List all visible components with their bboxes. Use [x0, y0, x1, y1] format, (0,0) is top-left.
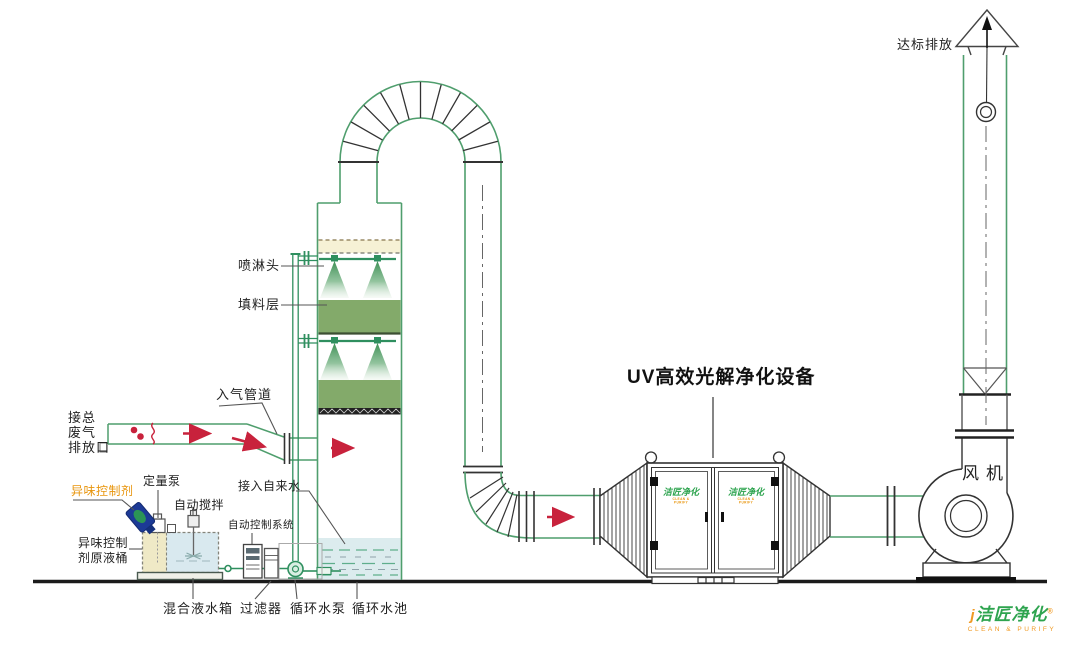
waste-gas-flow-marks — [131, 423, 262, 446]
uv-base-skid — [652, 577, 778, 584]
label-auto-control: 自动控制系统 — [228, 518, 294, 533]
filter-device — [265, 549, 279, 579]
label-packing-layer: 填料层 — [238, 297, 280, 312]
label-metering-pump: 定量泵 — [143, 474, 181, 489]
spray-nozzle-icon — [363, 261, 392, 298]
elbow-duct-to-uv — [463, 467, 600, 546]
label-spray-head: 喷淋头 — [238, 258, 280, 273]
label-waste-gas: 接总 废气 排放口 — [68, 410, 110, 455]
packing-layer-upper — [319, 300, 401, 334]
discharge-arrow-icon — [982, 16, 992, 102]
label-agent-barrel: 异味控制 剂原液桶 — [78, 536, 128, 566]
uv-door-logo-left: 洁匠净化 CLEAN & PURIFY — [653, 488, 709, 515]
label-circulating-pump: 循环水泵 — [290, 601, 346, 616]
demister-layer — [319, 240, 401, 253]
label-circulating-pool: 循环水池 — [352, 601, 408, 616]
label-mixing-tank: 混合液水箱 — [163, 601, 233, 616]
chimney — [955, 10, 1018, 438]
spray-nozzle-icon — [320, 261, 349, 298]
fan-volute — [919, 469, 1013, 563]
label-gas-inlet-pipe: 入气管道 — [216, 387, 272, 402]
control-cabinet — [244, 545, 263, 579]
uv-inlet-transition — [600, 463, 647, 577]
uv-outlet-transition — [783, 463, 830, 577]
uv-door-logo-right: 洁匠净化 CLEAN & PURIFY — [718, 488, 774, 515]
mixing-tank — [138, 533, 223, 580]
label-tap-water: 接入自来水 — [238, 479, 301, 494]
spray-supply-pipe — [291, 251, 319, 561]
diagram-lineart — [0, 0, 1080, 654]
packing-layer-lower — [319, 380, 401, 415]
process-diagram: 达标排放 喷淋头 填料层 入气管道 接入自来水 自动控制系统 接总 废气 排放口… — [0, 0, 1080, 654]
label-auto-stirrer: 自动搅拌 — [174, 498, 224, 513]
label-uv-unit-title: UV高效光解净化设备 — [627, 370, 815, 385]
fan — [916, 437, 1016, 583]
fan-inlet-eye — [945, 495, 987, 537]
duct-to-fan — [830, 486, 925, 546]
sample-port-icon — [977, 103, 996, 122]
spray-nozzle-icon — [363, 343, 392, 380]
circulating-pump-device — [288, 562, 303, 579]
brand-logo: j洁匠净化® CLEAN & PURIFY — [957, 600, 1067, 633]
fan-pedestal — [916, 549, 1016, 583]
uv-unit — [600, 397, 830, 584]
label-odor-agent: 异味控制剂 — [71, 484, 134, 499]
uv-lifting-rings — [646, 452, 785, 463]
label-filter: 过滤器 — [240, 601, 282, 616]
agent-leader — [73, 500, 134, 510]
uv-cabinet — [647, 463, 783, 577]
spray-nozzle-icon — [320, 343, 349, 380]
label-discharge: 达标排放 — [897, 37, 953, 52]
label-fan: 风机 — [962, 466, 1010, 481]
